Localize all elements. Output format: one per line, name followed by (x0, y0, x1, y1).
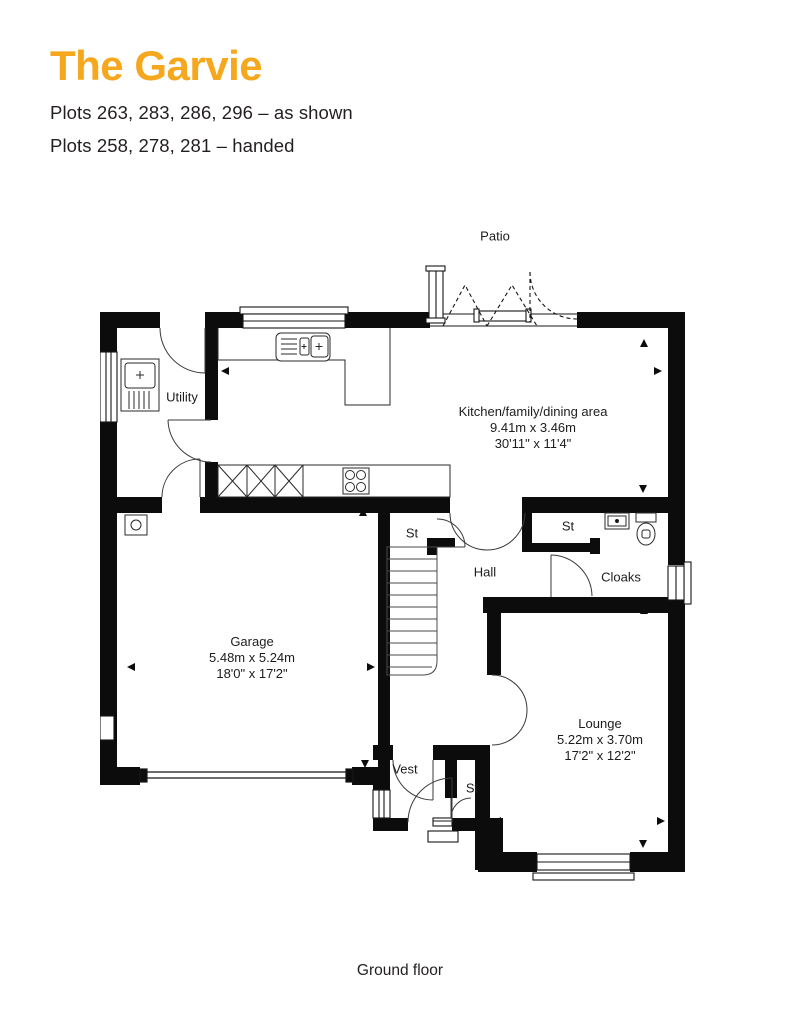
stairs (387, 547, 437, 675)
vest-label: Vest (392, 762, 417, 777)
room-dim-imperial: 17'2" x 12'2" (557, 748, 643, 764)
utility-sink (121, 359, 159, 411)
garage-label: Garage 5.48m x 5.24m 18'0" x 17'2" (209, 634, 295, 682)
room-name: Kitchen/family/dining area (459, 404, 608, 420)
kitchen-sink (276, 333, 330, 361)
st-upper-right-label: St (562, 519, 574, 534)
room-dim-imperial: 30'11" x 11'4" (459, 436, 608, 452)
patio-bifold-doors (426, 266, 577, 326)
hall-label: Hall (474, 565, 496, 580)
lounge-label: Lounge 5.22m x 3.70m 17'2" x 12'2" (557, 716, 643, 764)
room-dim-metric: 5.22m x 3.70m (557, 732, 643, 748)
utility-label: Utility (166, 390, 198, 405)
st-lower-label: St (466, 781, 478, 796)
plots-handed: Plots 258, 278, 281 – handed (50, 135, 353, 157)
page-title: The Garvie (50, 44, 353, 88)
room-dim-metric: 9.41m x 3.46m (459, 420, 608, 436)
cloaks-label: Cloaks (601, 570, 641, 585)
st-upper-left-label: St (406, 526, 418, 541)
plots-as-shown: Plots 263, 283, 286, 296 – as shown (50, 102, 353, 124)
room-dim-imperial: 18'0" x 17'2" (209, 666, 295, 682)
toilet-cistern (636, 513, 656, 522)
floorplan: Patio Utility Kitchen/family/dining area… (100, 230, 700, 890)
room-dim-metric: 5.48m x 5.24m (209, 650, 295, 666)
room-name: Lounge (557, 716, 643, 732)
floor-caption: Ground floor (0, 962, 800, 980)
garage-door (140, 769, 353, 782)
garage-appliance (125, 515, 147, 535)
page: The Garvie Plots 263, 283, 286, 296 – as… (0, 0, 800, 1036)
patio-label: Patio (480, 229, 510, 244)
kitchen-units (218, 328, 450, 497)
plan-header: The Garvie Plots 263, 283, 286, 296 – as… (50, 44, 353, 157)
floorplan-drawing (100, 230, 700, 890)
cloaks-fixtures (605, 513, 656, 545)
kitchen-label: Kitchen/family/dining area 9.41m x 3.46m… (459, 404, 608, 452)
room-name: Garage (209, 634, 295, 650)
